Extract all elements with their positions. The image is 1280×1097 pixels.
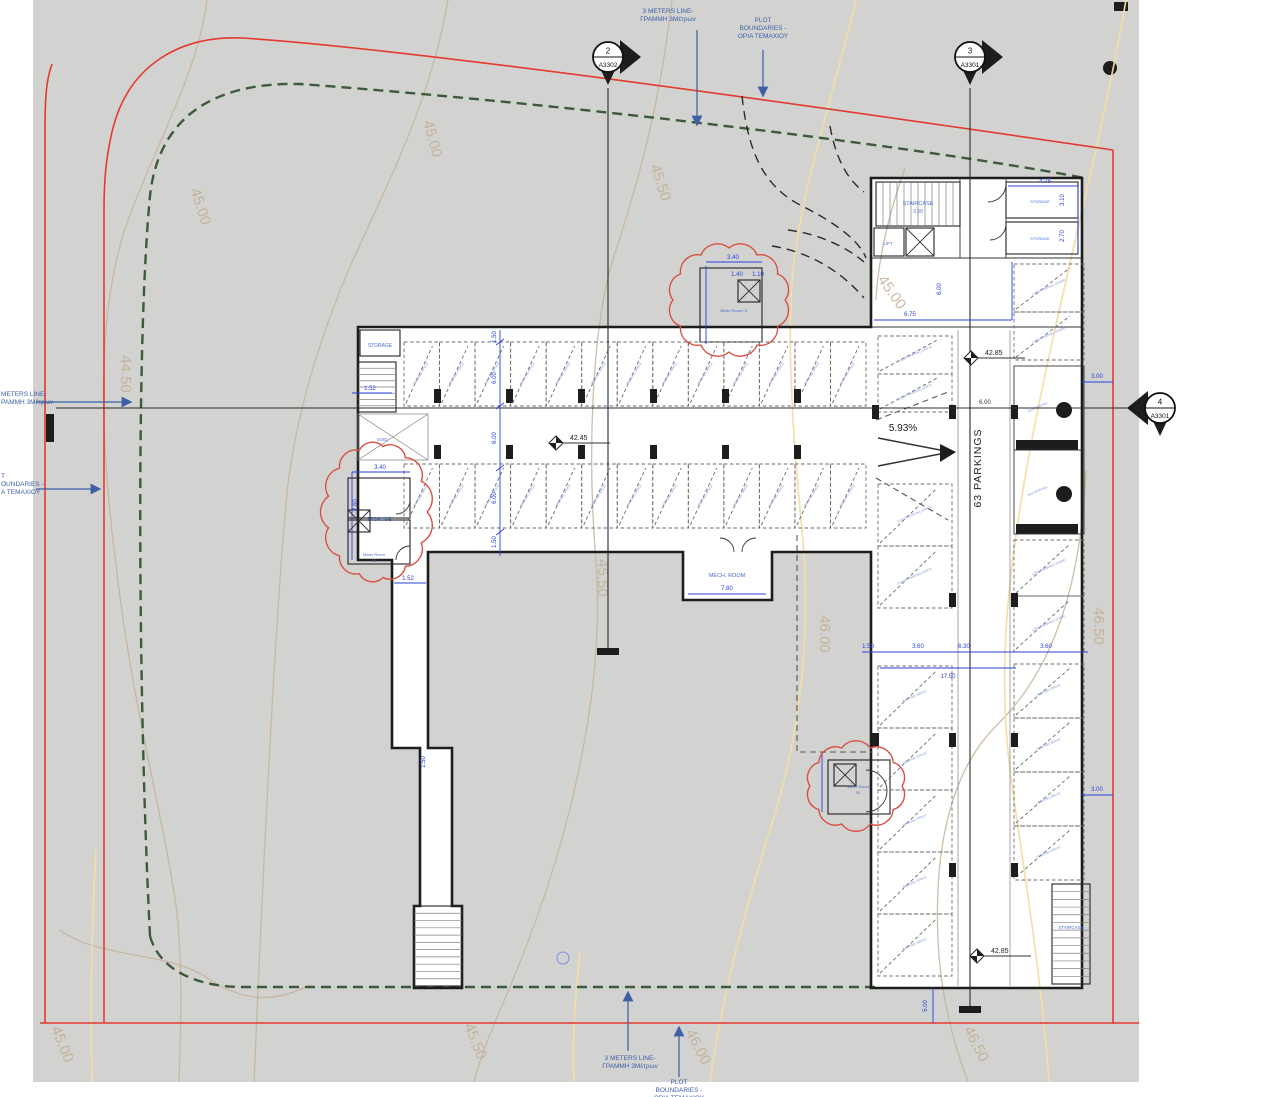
section-sheet: A3301 [961, 62, 980, 69]
plan-label: STORAGE [1030, 236, 1050, 241]
dimension-label: 6.00 [937, 283, 943, 295]
column [506, 445, 513, 459]
column [578, 445, 585, 459]
section-number: 3 [968, 47, 973, 56]
column [949, 863, 956, 877]
plan-label: LIFT [883, 241, 893, 246]
dimension-label: 6.00 [492, 432, 498, 444]
dimension-label: 3.40 [374, 465, 386, 471]
plan-label: STORAGE [367, 517, 392, 523]
plan-label: STORAGE [368, 343, 393, 349]
column [949, 405, 956, 419]
dimension-label: 6.30 [958, 644, 970, 650]
site-plan-drawing: 44.5045.0045.0045.5045.0045.5046.0046.50… [0, 0, 1280, 1097]
plan-label: Meter Room 01 [720, 308, 748, 313]
dimension-label: 6.75 [904, 312, 916, 318]
plan-label: 6.00 [979, 400, 991, 406]
dimension-label: 4.75 [1039, 179, 1051, 185]
plan-label: 63 PARKINGS [972, 428, 984, 507]
column [650, 445, 657, 459]
dimension-label: 3.00 [1091, 374, 1103, 380]
level-value: 42.45 [570, 435, 588, 442]
column [949, 733, 956, 747]
dimension-label: 17.50 [940, 674, 956, 680]
plan-label: 5.93% [889, 423, 917, 434]
plan-label: STORAGE [1030, 199, 1050, 204]
column [794, 445, 801, 459]
level-value: 42.85 [991, 948, 1009, 955]
dda-bar-2 [1016, 524, 1078, 534]
section-sheet: A3302 [599, 62, 618, 69]
column [434, 389, 441, 403]
plan-label: VOID [376, 437, 388, 442]
section-number: 4 [1158, 398, 1163, 407]
dimension-label: 1.10 [752, 272, 764, 278]
dimension-label: 3.60 [1040, 644, 1052, 650]
column [1011, 863, 1018, 877]
section-number: 2 [606, 47, 611, 56]
contour-elevation-label: 46.50 [1090, 607, 1107, 645]
column [1011, 405, 1018, 419]
level-value: 42.85 [985, 350, 1003, 357]
column [794, 389, 801, 403]
column [1011, 733, 1018, 747]
plan-label: Meter Room [847, 784, 870, 789]
dda-icon-2 [1056, 486, 1072, 502]
dimension-label: 2.60 [353, 499, 359, 511]
callout-left-meters: METERS LINE-ΡΑΜΜΗ 3Μέτρων [1, 391, 53, 406]
dda-icon-1 [1056, 402, 1072, 418]
dimension-label: 3.00 [1091, 787, 1103, 793]
dimension-label: 1.40 [731, 272, 743, 278]
callout-bottom-meters: 3 METERS LINE-ΓΡΑΜΜΗ 3Μέτρων [602, 1055, 658, 1070]
contour-elevation-label: 46.00 [816, 615, 833, 653]
plan-label: Meter Room [363, 552, 386, 557]
dimension-label: 5.00 [923, 1000, 929, 1012]
column [434, 445, 441, 459]
plan-label: STAIRCASE [1058, 925, 1083, 930]
dimension-label: 1.52 [364, 386, 376, 392]
column [650, 389, 657, 403]
dimension-label: 3.10 [1060, 194, 1066, 206]
dimension-label: 3.40 [727, 255, 739, 261]
section-sheet: A3301 [1151, 413, 1170, 420]
dimension-label: 7.80 [721, 586, 733, 592]
dimension-label: 6.00 [492, 492, 498, 504]
plan-label: MECH. ROOM [709, 573, 746, 579]
dimension-label: 1.52 [402, 576, 414, 582]
column [949, 593, 956, 607]
column [872, 733, 879, 747]
column [872, 405, 879, 419]
dimension-label: 6.00 [492, 372, 498, 384]
dimension-label: 2.70 [1060, 230, 1066, 242]
plan-label: 02 [372, 558, 377, 563]
dda-bar-1 [1016, 440, 1078, 450]
plan-label: STAIRCASE [903, 201, 934, 207]
column [722, 445, 729, 459]
column [578, 389, 585, 403]
dimension-label: 1.50 [492, 536, 498, 548]
column [722, 389, 729, 403]
plan-label: 3.50 [913, 209, 923, 215]
column [1011, 593, 1018, 607]
dimension-label: 1.50 [492, 331, 498, 343]
column [506, 389, 513, 403]
plan-label: 03 [856, 790, 861, 795]
callout-top-meters: 3 METERS LINE-ΓΡΑΜΜΗ 3Μέτρων [640, 8, 696, 23]
dimension-label: 1.50 [862, 644, 874, 650]
dimension-label: 1.50 [421, 756, 427, 768]
dimension-label: 3.60 [912, 644, 924, 650]
contour-elevation-label: 44.50 [117, 355, 134, 393]
